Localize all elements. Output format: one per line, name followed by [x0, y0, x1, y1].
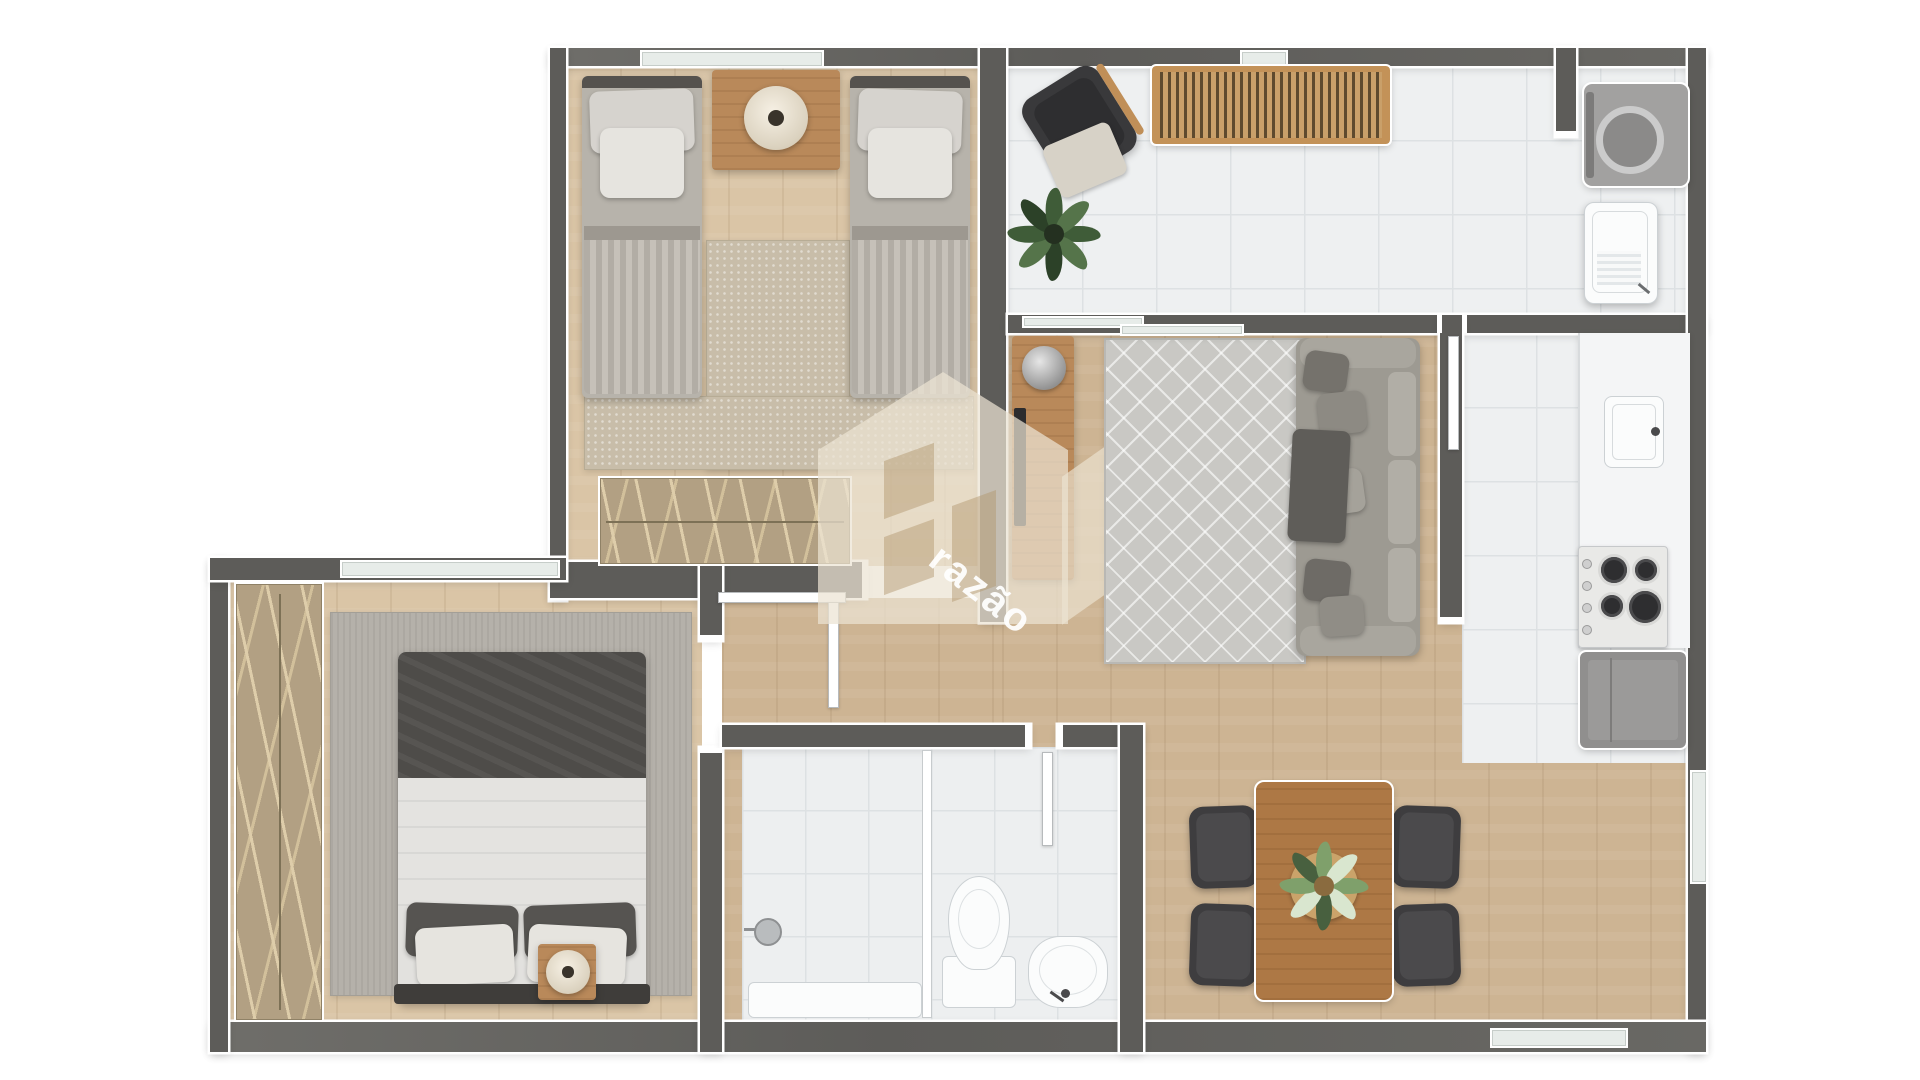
cooktop-knob	[1582, 625, 1592, 635]
door-leaf-bathroom	[1042, 752, 1053, 846]
watermark-logo-echo	[1062, 447, 1104, 624]
blanket-fold	[852, 226, 968, 240]
shower-tray	[748, 982, 922, 1018]
window-dining-bottom	[1490, 1028, 1628, 1048]
headboard	[850, 76, 970, 88]
tank-washboard	[1597, 251, 1641, 285]
sliding-door-balcony-leaf-2	[1120, 324, 1244, 336]
window-bedroom-twin	[640, 50, 824, 68]
wall-cap	[700, 748, 722, 753]
sink-faucet	[1061, 989, 1070, 998]
shower-head	[754, 918, 782, 946]
sink-bowl	[1039, 945, 1097, 995]
burner	[1601, 595, 1623, 617]
pillow	[600, 128, 684, 198]
rug-living-room	[1104, 338, 1306, 664]
slatted-bench	[1152, 66, 1390, 144]
toilet-seat	[958, 889, 1000, 949]
kitchen-sink	[1604, 396, 1664, 468]
dining-chair	[1189, 903, 1260, 987]
wall-cap	[1437, 315, 1442, 333]
wall-cap	[1440, 617, 1462, 622]
blanket	[852, 226, 968, 394]
washing-machine	[1584, 84, 1688, 186]
washer-door-ring	[1596, 106, 1664, 174]
sofa-pillow	[1301, 349, 1350, 395]
headboard	[394, 984, 650, 1004]
wall-bedroom-double-right-lower	[700, 748, 722, 1052]
cooktop-knob	[1582, 581, 1592, 591]
sofa-back-cushion	[1388, 460, 1416, 544]
sink-faucet	[1651, 427, 1660, 436]
wardrobe-bedroom-twin	[600, 478, 850, 564]
wall-right-exterior	[1688, 48, 1706, 1052]
double-bed	[398, 652, 646, 1004]
dining-chair	[1189, 805, 1260, 889]
wall-cap	[1556, 131, 1576, 136]
wall-cap	[1462, 315, 1467, 333]
bench-slats	[1160, 72, 1382, 138]
wall-bedroom-twin-left	[550, 48, 566, 600]
blanket	[584, 226, 700, 394]
duvet	[398, 778, 646, 906]
fridge-panel	[1588, 660, 1678, 740]
throw-blanket	[1287, 429, 1351, 544]
refrigerator	[1580, 652, 1686, 748]
window-kitchen-right	[1690, 770, 1708, 884]
wall-bathroom-top-left	[722, 725, 1030, 747]
sofa-pillow	[1319, 595, 1366, 638]
wall-cap	[1058, 725, 1063, 747]
wall-bottom-exterior	[210, 1022, 1706, 1052]
shower-glass-partition	[922, 750, 932, 1018]
twin-bed-right	[850, 76, 970, 398]
sofa-back-cushion	[1388, 548, 1416, 622]
pillow	[868, 128, 952, 198]
sofa-back-cushion	[1388, 372, 1416, 456]
window-bedroom-double	[340, 560, 560, 578]
foot-blanket	[398, 652, 646, 778]
wardrobe-bedroom-double	[236, 584, 322, 1020]
wall-laundry-stub	[1556, 48, 1576, 136]
shower-arm	[744, 928, 756, 931]
blanket-fold	[584, 226, 700, 240]
sink-basin	[1612, 404, 1656, 460]
wall-balcony-bottom-right	[1462, 315, 1706, 333]
burner	[1629, 591, 1661, 623]
toilet-bowl	[948, 876, 1010, 970]
wall-cap	[1025, 725, 1030, 747]
gas-cooktop	[1578, 546, 1668, 648]
headboard	[582, 76, 702, 88]
door-leaf-kitchen-balcony	[1448, 336, 1459, 450]
twin-bed-left	[582, 76, 702, 398]
wall-bedroom-double-left	[210, 558, 228, 1052]
balcony-plant	[1012, 192, 1096, 276]
wall-bathroom-right	[1120, 725, 1143, 1052]
wall-cap	[700, 635, 722, 640]
laundry-tank	[1584, 202, 1658, 304]
cooktop-knob	[1582, 559, 1592, 569]
side-table-lamp	[546, 950, 590, 994]
pedestal-sink	[1028, 936, 1108, 1008]
centerpiece-plant	[1284, 846, 1364, 926]
pillow-white	[415, 923, 516, 986]
dining-chair	[1391, 805, 1462, 889]
dining-chair	[1391, 903, 1462, 987]
cooktop-knob	[1582, 603, 1592, 613]
washer-control-strip	[1586, 92, 1594, 178]
table-lamp	[744, 86, 808, 150]
sofa	[1296, 338, 1420, 656]
floor-plan: razão	[0, 0, 1920, 1080]
fridge-seam	[1610, 658, 1612, 742]
burner	[1635, 559, 1657, 581]
burner	[1601, 557, 1627, 583]
decor-sphere	[1022, 346, 1066, 390]
